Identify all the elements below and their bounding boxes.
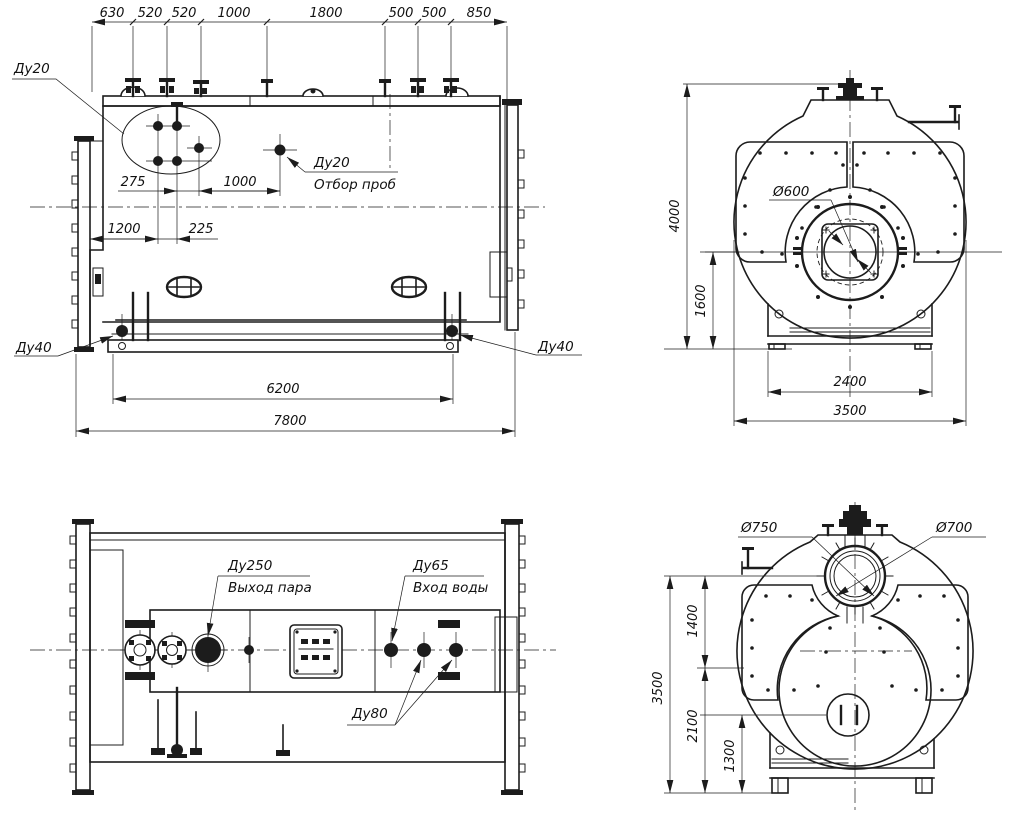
dim-500b: 500 (422, 6, 447, 21)
small-port (244, 637, 254, 663)
dim-4000-text: 4000 (668, 199, 683, 232)
leader-du40-right: Ду40 (460, 335, 582, 355)
dim-1600-text: 1600 (694, 284, 709, 317)
plan-view: Ду250 Выход пара Ду65 Вход воды Ду80 (30, 519, 556, 795)
du250-label-line2: Выход пара (228, 580, 312, 596)
dim-1600: 1600 (694, 252, 740, 349)
manhole-icon (392, 277, 426, 297)
leader-sample: Ду20 Отбор проб (287, 155, 398, 193)
side-dim-chain: 630 520 520 1000 1800 500 500 850 (92, 6, 507, 100)
top-valve-icon (817, 78, 883, 100)
d750-label: Ø750 (740, 520, 777, 536)
valve-icon (159, 78, 175, 96)
du250-label-line1: Ду250 (227, 558, 272, 574)
plan-front-flange (70, 519, 94, 795)
dim-520b: 520 (172, 6, 197, 21)
dim-6200: 6200 (113, 354, 453, 404)
side-view: 630 520 520 1000 1800 500 500 850 (12, 6, 582, 437)
dim-1300-text: 1300 (723, 739, 738, 772)
du20-label: Ду20 (13, 61, 50, 77)
d600-label: Ø600 (772, 184, 809, 200)
rear-top-valve-icon (822, 505, 888, 535)
du40-nozzle-left (116, 325, 128, 337)
dim-520a: 520 (138, 6, 163, 21)
dim-2100-text: 2100 (686, 709, 701, 742)
leader-d600: Ø600 (769, 184, 858, 262)
junction-box-icon (290, 625, 342, 678)
sample-nozzle (263, 134, 297, 196)
rear-saddle (770, 733, 934, 793)
plan-bottom-stubs (151, 688, 290, 758)
plan-rear-flange (501, 519, 525, 795)
handrail-icon (909, 105, 961, 129)
valve-icon (193, 80, 209, 96)
du65-label-line1: Ду65 (412, 558, 449, 574)
dim-7800-text: 7800 (273, 414, 306, 429)
dim-3500-rear-text: 3500 (651, 671, 666, 704)
dim-850: 850 (467, 6, 492, 21)
dim-630: 630 (100, 6, 125, 21)
technical-drawing: 630 520 520 1000 1800 500 500 850 (0, 0, 1024, 817)
front-flange (72, 136, 103, 352)
dim-1800: 1800 (309, 6, 342, 21)
front-view: Ø600 4000 1600 2400 3500 (664, 70, 1002, 426)
stub-icon (379, 79, 391, 96)
rear-dims: 3500 1400 2100 1300 (651, 576, 826, 793)
rear-flange (490, 99, 524, 330)
du40-left-label: Ду40 (15, 340, 52, 356)
leader-du20: Ду20 (12, 61, 124, 134)
rear-handrail-icon (742, 547, 772, 574)
dim-1400-text: 1400 (686, 604, 701, 637)
manhole-icon (167, 277, 201, 297)
dim-1000-text: 1000 (223, 175, 256, 190)
top-fittings (121, 78, 468, 96)
dim-2400-text: 2400 (833, 375, 866, 390)
du80-port-1 (417, 632, 431, 668)
valve-icon (410, 78, 426, 96)
du65-water-inlet (384, 632, 398, 668)
rear-view: Ø750 Ø700 3500 1400 2100 1300 (651, 502, 986, 812)
leader-du40-left: Ду40 (14, 336, 113, 356)
flanged-port-icon (154, 632, 190, 668)
du80-label: Ду80 (351, 706, 388, 722)
sample-label-line2: Отбор проб (314, 177, 396, 193)
du65-label-line2: Вход воды (413, 580, 489, 596)
sample-label-line1: Ду20 (313, 155, 350, 171)
du40-right-label: Ду40 (537, 339, 574, 355)
plan-ports (120, 620, 463, 680)
drawing-sheet: 630 520 520 1000 1800 500 500 850 (0, 0, 1024, 817)
du80-port-2 (449, 632, 463, 668)
dim-6200-text: 6200 (266, 382, 299, 397)
dim-3500-text: 3500 (833, 404, 866, 419)
dim-500a: 500 (389, 6, 414, 21)
stub-icon (261, 79, 273, 96)
dim-1200-225: 1200 225 (90, 222, 218, 245)
d700-label: Ø700 (935, 520, 972, 536)
dim-1200-text: 1200 (107, 222, 140, 237)
leader-du65: Ду65 Вход воды (392, 558, 489, 641)
dim-225-text: 225 (189, 222, 214, 237)
rear-manhole (827, 694, 869, 736)
dim-1000-top: 1000 (217, 6, 250, 21)
du40-nozzle-right (446, 325, 458, 337)
dim-275-text: 275 (121, 175, 146, 190)
